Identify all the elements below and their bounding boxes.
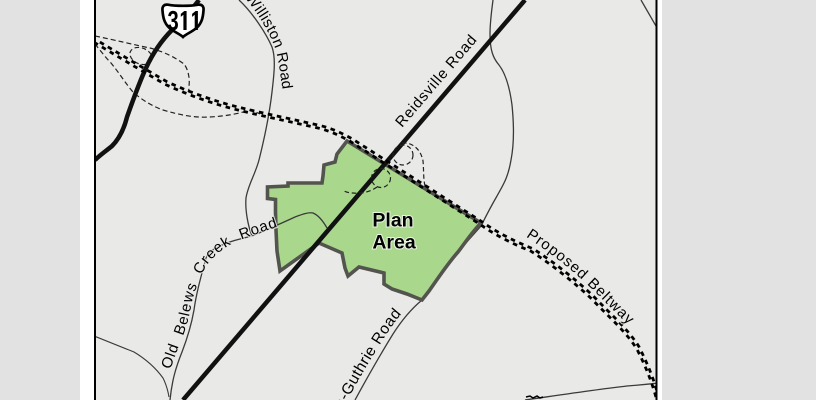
- svg-text:Plan: Plan: [372, 210, 413, 232]
- svg-text:Area: Area: [372, 232, 416, 254]
